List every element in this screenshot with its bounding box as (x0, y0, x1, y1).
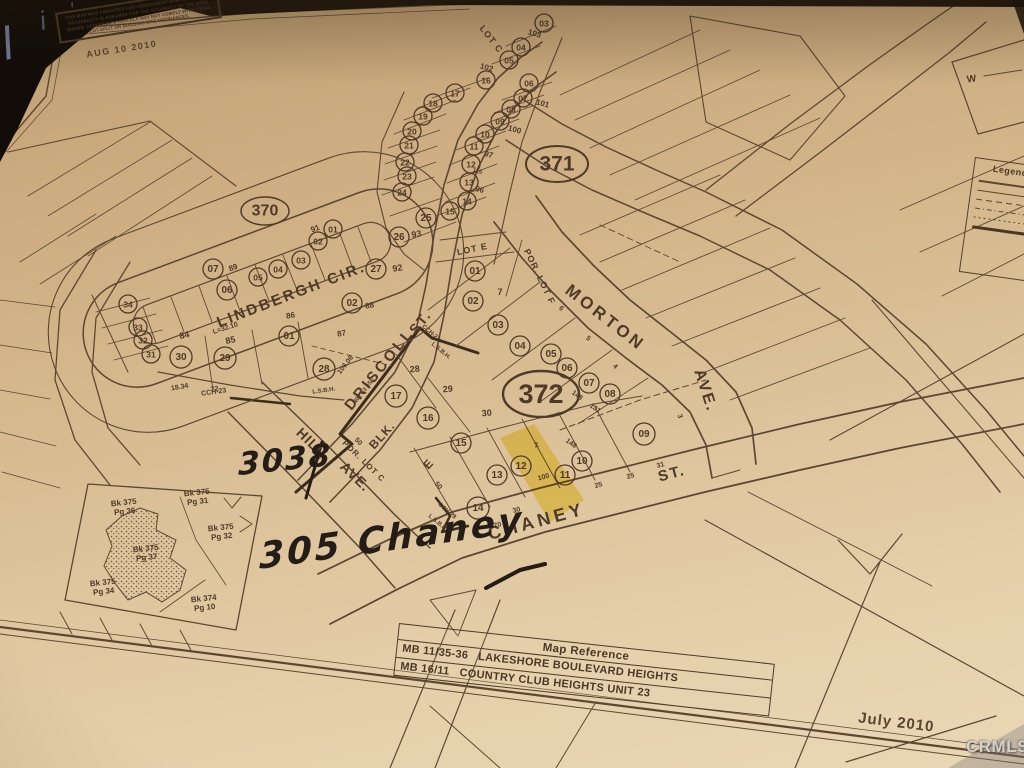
lot-number: 03 (296, 256, 306, 266)
lot-dimension-number: 84 (178, 329, 190, 341)
inset-book-page-label: Bk 374Pg 10 (190, 593, 218, 614)
lot-number: 08 (604, 389, 616, 400)
map-line (196, 540, 226, 585)
lot-dimension-number: 28 (409, 364, 420, 375)
map-line (635, 118, 820, 200)
lot-number: 14 (462, 197, 472, 207)
lot-number: 11 (560, 470, 571, 481)
lot-number: 01 (469, 266, 481, 277)
lot-number: 13 (464, 178, 474, 188)
lot-dimension-number: 96 (474, 184, 485, 195)
lot-number: 02 (313, 237, 323, 247)
map-line (556, 702, 596, 768)
lot-number: 04 (516, 43, 526, 53)
lot-number: 10 (576, 456, 588, 467)
lot-number: 03 (539, 19, 549, 29)
lot-dimension-number: 115 (472, 168, 484, 176)
map-line (600, 200, 745, 262)
map-line (100, 618, 112, 640)
lot-number: 28 (318, 364, 330, 375)
street-name-label: LOT E (456, 241, 489, 257)
lot-dimension-number: 5 (584, 335, 592, 343)
lot-dimension-number: 87 (336, 328, 347, 339)
lot-dimension-number: 4 (611, 363, 619, 371)
map-line (830, 334, 1024, 440)
map-line (748, 492, 932, 586)
lot-dimension-number: 89 (227, 262, 239, 274)
map-line (414, 448, 455, 517)
lot-number: 07 (583, 378, 595, 389)
map-line (430, 706, 500, 768)
map-line (984, 70, 1022, 76)
map-line (180, 630, 192, 652)
lot-dimension-number: 18.34 (170, 383, 189, 393)
map-line (440, 232, 506, 240)
inset-book-page-label: Bk 375Pg 32 (207, 522, 235, 543)
lot-dimension-number: 106.06 (336, 354, 355, 375)
map-line (358, 227, 371, 262)
map-line (432, 78, 488, 98)
map-line (48, 140, 172, 216)
lot-number: 17 (450, 89, 460, 99)
lot-number: 20 (407, 127, 417, 137)
lot-number: 05 (253, 273, 263, 283)
lot-dimension-number: 103 (527, 28, 543, 40)
lot-number: 23 (402, 172, 412, 182)
lot-number: 09 (638, 429, 650, 440)
legend-line-sample (974, 216, 1024, 225)
map-line (55, 250, 110, 485)
block-number: 371 (539, 153, 574, 176)
lot-dimension-number: 29 (442, 384, 453, 395)
lot-dimension-number: 100 (507, 124, 523, 136)
lot-dimension-number: CCH-23 (420, 324, 441, 343)
lot-dimension-number: 97 (483, 149, 494, 160)
lot-number: 32 (138, 336, 148, 346)
legend-line-sample (975, 207, 1024, 216)
inset-book-page-label: Bk 375Pg 34 (89, 577, 117, 598)
lot-dimension-number: 148 (564, 438, 578, 450)
lot-number: 06 (561, 363, 573, 374)
map-line (0, 432, 56, 446)
map-line (377, 92, 424, 270)
lot-number: 34 (123, 300, 133, 310)
map-line (92, 262, 140, 465)
lot-number: 22 (400, 158, 410, 168)
map-line (575, 50, 730, 120)
lot-dimension-number: 92 (392, 262, 404, 274)
photo-dark-edge (150, 0, 1024, 16)
lot-dimension-number: 6 (557, 305, 565, 313)
map-line (646, 258, 795, 318)
lot-number: 03 (492, 320, 504, 331)
lot-number: 06 (524, 79, 534, 89)
lot-dimension-number: 85 (224, 334, 236, 346)
block-number: 372 (518, 379, 563, 409)
map-line (690, 16, 845, 160)
legend-line-sample (976, 199, 1024, 208)
inset-book-page-label: Bk 375Pg 37 (132, 543, 160, 564)
street-name-label: AVE. (690, 367, 720, 414)
map-line (730, 348, 870, 400)
lot-dimension-number: L.S.B.H. (312, 386, 336, 395)
lindbergh-loop-shapes (20, 123, 493, 461)
lot-number: 29 (219, 353, 231, 364)
lot-dimension-number: 30 (481, 408, 492, 419)
map-line (224, 497, 241, 508)
lot-number: 11 (470, 142, 479, 152)
map-line (68, 158, 192, 236)
map-line (88, 176, 212, 256)
lot-number: 30 (175, 352, 187, 363)
map-line (952, 40, 1024, 62)
map-line (240, 516, 252, 532)
lot-number: 01 (283, 331, 295, 342)
lot-number: 31 (146, 350, 156, 360)
map-line (0, 300, 55, 307)
lot-number: 16 (422, 413, 434, 424)
lot-number: 17 (390, 391, 402, 402)
block-number: 370 (252, 203, 279, 220)
lot-number: 26 (393, 232, 405, 243)
lot-number: 13 (491, 470, 503, 481)
map-line (171, 297, 184, 332)
lot-dimension-number: 93 (411, 228, 423, 240)
lot-number: 18 (428, 99, 438, 109)
map-line (436, 197, 486, 216)
lot-number: 24 (397, 188, 407, 198)
legend-line-sample (977, 190, 1024, 199)
lot-number: 21 (404, 141, 414, 151)
lot-number: 07 (518, 94, 528, 104)
lot-number: 19 (418, 112, 428, 122)
lot-number: 16 (481, 76, 491, 86)
map-line (0, 390, 50, 399)
lot-number: 04 (273, 265, 283, 275)
map-line (252, 330, 262, 384)
map-line (524, 100, 1024, 456)
map-line (872, 300, 1024, 478)
lot-number: 12 (515, 461, 527, 472)
map-line (706, 0, 962, 190)
lot-number: 27 (370, 264, 382, 275)
inset-book-page-label: Bk 375Pg 36 (110, 497, 138, 518)
map-line (40, 236, 116, 284)
lot-number: 08 (506, 105, 516, 115)
lot-dimension-number: 25 (626, 472, 635, 481)
map-line (580, 175, 720, 235)
lot-dimension-number: 86 (285, 310, 296, 321)
lot-number: 25 (420, 213, 432, 224)
map-line (560, 30, 700, 95)
map-line (60, 612, 72, 634)
lot-dimension-number: 7 (497, 287, 502, 297)
street-name-label: POR. LOT F (522, 247, 558, 306)
legend-title: Legend (978, 162, 1024, 181)
lot-dimension-number: CCH-23 (201, 387, 227, 397)
map-line (672, 288, 820, 346)
lot-number: 05 (504, 56, 514, 66)
crmls-watermark: CRMLS (966, 737, 1024, 757)
map-line (2, 472, 60, 488)
lot-number: 10 (480, 130, 490, 140)
map-line (610, 95, 790, 175)
map-line (28, 122, 150, 196)
street-name-label: W (966, 73, 977, 85)
map-line (978, 122, 1024, 134)
map-line (0, 345, 52, 353)
street-loop (20, 123, 493, 461)
lot-number: 04 (514, 341, 526, 352)
lot-dimension-number: 3 (675, 413, 683, 419)
street-name-label: LOT C (478, 23, 506, 54)
lot-dimension-number: 25 (594, 481, 603, 490)
lot-number: 07 (207, 264, 219, 275)
photo-of-plat-map: 370371372 010203040506073433323130292627… (0, 0, 1024, 768)
lot-number: 05 (545, 349, 557, 360)
map-line (712, 470, 740, 478)
lot-number: 15 (455, 438, 467, 449)
lot-number: 06 (221, 285, 233, 296)
legend-line-sample (972, 225, 1024, 236)
street-name-label: E (420, 457, 436, 472)
lot-number: 02 (467, 296, 479, 307)
map-line (8, 121, 236, 186)
lot-number: 09 (495, 117, 505, 127)
lot-number: 01 (328, 225, 338, 235)
lot-number: 15 (445, 207, 455, 217)
map-line (736, 22, 986, 216)
lot-number: 02 (346, 298, 358, 309)
inset-book-page-label: Bk 375Pg 31 (183, 487, 211, 508)
legend-line-sample (979, 180, 1024, 190)
map-line (486, 564, 545, 588)
map-line (140, 624, 152, 646)
block-number-ovals: 370371372 (241, 146, 588, 417)
map-line (590, 70, 760, 148)
map-line (199, 286, 212, 322)
